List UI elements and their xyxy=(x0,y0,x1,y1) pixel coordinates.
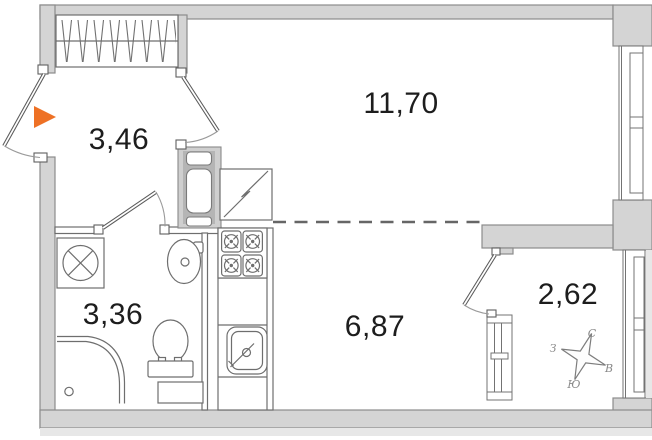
balcony-top-wall xyxy=(482,225,613,248)
hallway-door xyxy=(176,68,218,149)
stove xyxy=(218,228,267,278)
floor-plan: С З В Ю 3,46 11,70 3,36 6,87 2,62 xyxy=(0,0,652,440)
compass-rose-icon: С З В Ю xyxy=(550,327,613,391)
balcony-inner-window xyxy=(487,315,512,400)
exterior-walls xyxy=(40,5,652,436)
living-room-window xyxy=(619,46,643,200)
bathroom-door xyxy=(94,192,169,234)
wash-basin xyxy=(168,240,204,284)
wardrobe xyxy=(56,15,178,67)
left-wall-lower xyxy=(40,157,55,428)
hall-partition-wall xyxy=(178,15,187,73)
washing-machine xyxy=(57,238,104,288)
toilet xyxy=(148,320,193,377)
compass-east-label: В xyxy=(604,362,613,375)
area-label-kitchen-zone: 6,87 xyxy=(345,310,405,344)
floor-plan-svg: С З В Ю xyxy=(0,0,652,440)
bottom-wall xyxy=(40,410,652,428)
entrance-arrow-icon xyxy=(34,106,56,128)
exterior-strip-right xyxy=(646,250,652,398)
left-wall-upper xyxy=(40,5,55,73)
area-label-hallway: 3,46 xyxy=(89,123,149,157)
area-label-living-room: 11,70 xyxy=(363,87,438,121)
balcony-right-window xyxy=(623,250,645,398)
balcony-door xyxy=(464,248,500,317)
kitchen-sink xyxy=(227,327,267,374)
area-label-bathroom: 3,36 xyxy=(83,298,143,332)
area-label-balcony: 2,62 xyxy=(538,278,598,312)
shower xyxy=(57,337,125,404)
ventilation-shaft xyxy=(178,147,221,228)
exterior-strip-bottom xyxy=(40,428,652,436)
compass-south-label: Ю xyxy=(566,378,580,391)
right-wall-mid xyxy=(613,200,652,250)
fridge xyxy=(220,169,272,220)
compass-west-label: З xyxy=(550,342,557,355)
top-right-corner-wall xyxy=(613,5,652,46)
compass-north-label: С xyxy=(588,327,597,340)
plumbing-box xyxy=(158,382,203,403)
